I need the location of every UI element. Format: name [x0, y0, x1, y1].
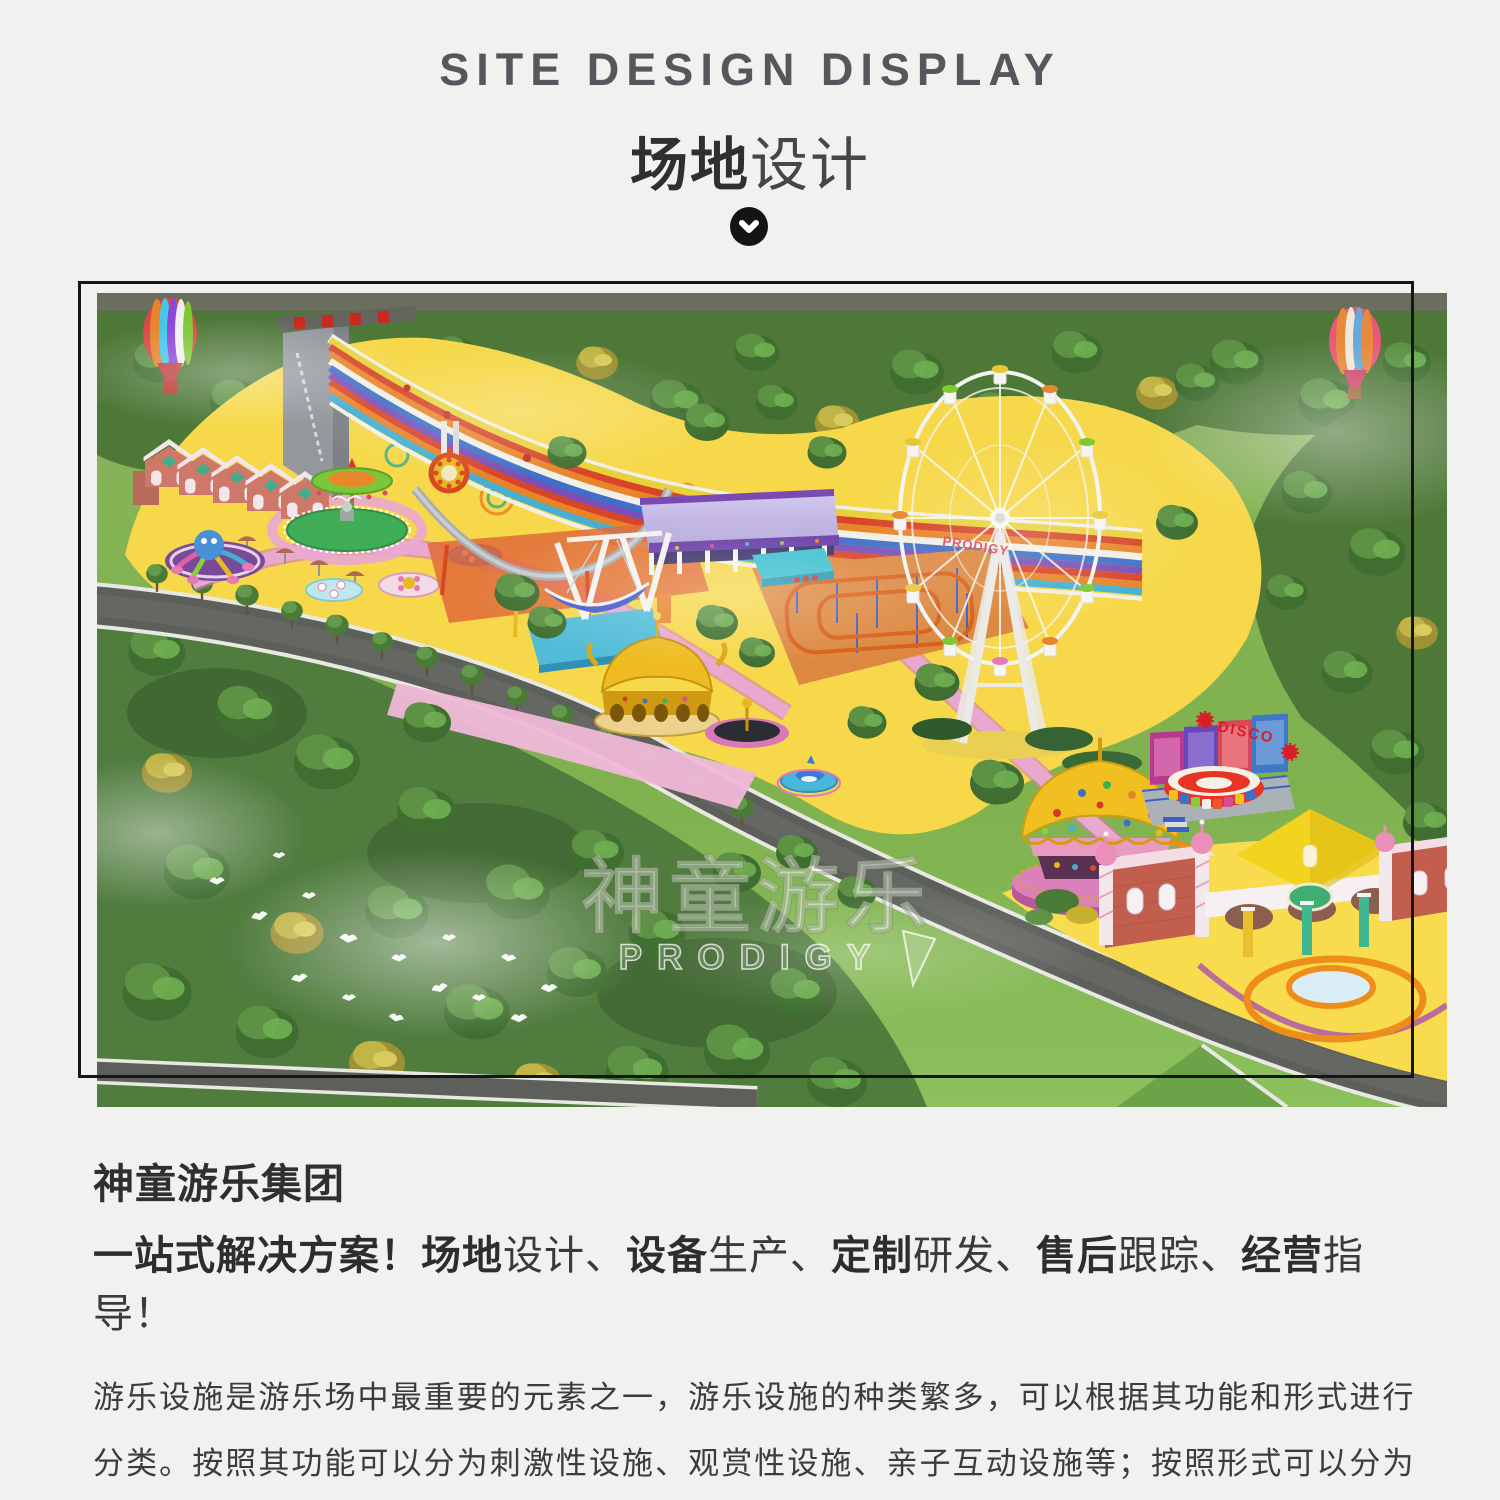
subheading-segment: 定制	[831, 1234, 913, 1278]
subheading-segment: 场地	[421, 1234, 503, 1278]
subheading-segment: 经营	[1241, 1234, 1323, 1278]
scroll-down-icon[interactable]	[730, 207, 768, 246]
watermark-cn: 神童游乐	[581, 852, 933, 943]
section-title-zh-light: 设计	[750, 133, 870, 198]
description-paragraph: 游乐设施是游乐场中最重要的元素之一，游乐设施的种类繁多，可以根据其功能和形式进行…	[93, 1365, 1415, 1500]
section-title-zh: 场地设计	[0, 118, 1500, 202]
company-heading: 神童游乐集团	[93, 1150, 1415, 1210]
amusement-park-render: PRODIGY	[97, 293, 1447, 1107]
subheading-segment: 研发、	[913, 1234, 1036, 1278]
section-title-en: SITE DESIGN DISPLAY	[0, 44, 1500, 96]
solutions-subheading: 一站式解决方案！场地设计、设备生产、定制研发、售后跟踪、经营指导！	[93, 1223, 1415, 1339]
subheading-segment: 一站式解决方案！	[93, 1234, 421, 1278]
subheading-segment: 跟踪、	[1118, 1234, 1241, 1278]
content-section: 神童游乐集团 一站式解决方案！场地设计、设备生产、定制研发、售后跟踪、经营指导！…	[93, 1150, 1415, 1500]
subheading-segment: 设备	[626, 1234, 708, 1278]
watermark: 神童游乐 PRODIGY	[581, 852, 935, 985]
subheading-segment: 生产、	[708, 1234, 831, 1278]
subheading-segment: 售后	[1036, 1234, 1118, 1278]
watermark-en: PRODIGY	[619, 938, 885, 977]
subheading-segment: 设计、	[503, 1234, 626, 1278]
page: SITE DESIGN DISPLAY 场地设计	[0, 0, 1500, 1500]
chevron-down-icon	[738, 216, 760, 238]
site-plan-image: PRODIGY	[97, 293, 1447, 1107]
section-title-zh-bold: 场地	[630, 133, 750, 198]
